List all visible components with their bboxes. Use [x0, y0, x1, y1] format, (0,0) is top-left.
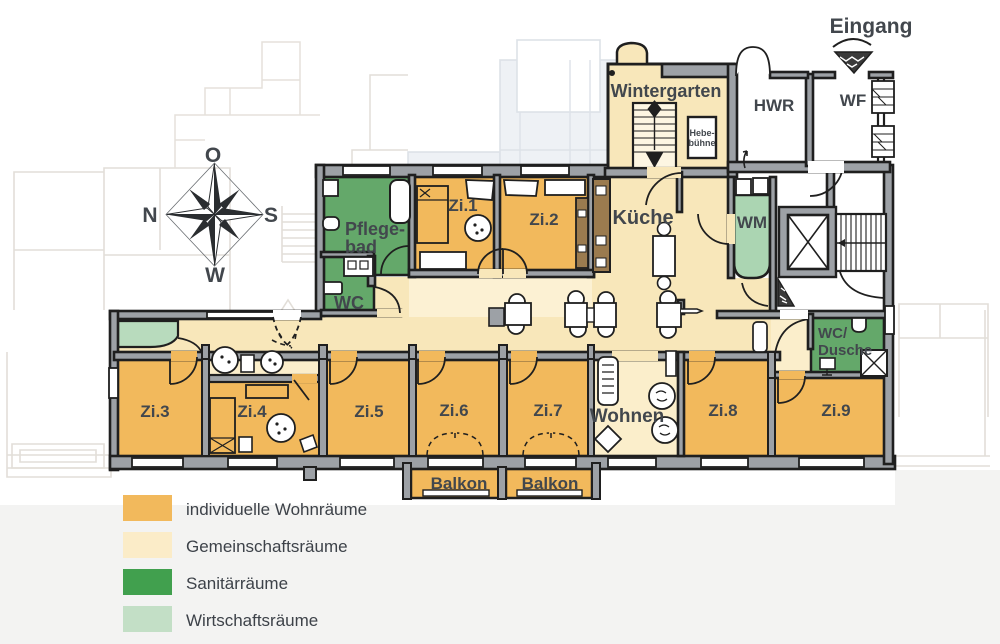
svg-text:Zi.5: Zi.5 — [354, 402, 383, 421]
svg-text:Zi.8: Zi.8 — [708, 401, 737, 420]
svg-text:Zi.7: Zi.7 — [533, 401, 562, 420]
svg-text:Dusche: Dusche — [818, 342, 872, 359]
svg-text:Balkon: Balkon — [522, 474, 579, 493]
svg-text:Zi.9: Zi.9 — [821, 401, 850, 420]
svg-text:Zi.6: Zi.6 — [439, 401, 468, 420]
svg-text:Gemeinschaftsräume: Gemeinschaftsräume — [186, 537, 348, 556]
svg-text:HWR: HWR — [754, 96, 795, 115]
svg-text:O: O — [205, 144, 221, 167]
svg-text:W: W — [205, 264, 225, 287]
svg-text:bühne: bühne — [689, 138, 716, 148]
svg-text:S: S — [264, 204, 278, 227]
svg-text:WC/: WC/ — [818, 325, 848, 342]
svg-text:Pflege-: Pflege- — [345, 219, 405, 239]
svg-text:N: N — [142, 204, 157, 227]
svg-text:Wintergarten: Wintergarten — [611, 81, 722, 101]
svg-text:Wirtschaftsräume: Wirtschaftsräume — [186, 611, 318, 630]
svg-text:Zi.3: Zi.3 — [140, 402, 169, 421]
svg-text:Zi.2: Zi.2 — [529, 210, 558, 229]
svg-text:Sanitärräume: Sanitärräume — [186, 574, 288, 593]
svg-text:Küche: Küche — [612, 207, 673, 229]
svg-text:Eingang: Eingang — [830, 15, 913, 38]
svg-text:Wohnen: Wohnen — [590, 406, 665, 427]
svg-text:Zi.4: Zi.4 — [237, 402, 267, 421]
svg-text:Balkon: Balkon — [431, 474, 488, 493]
svg-text:Hebe-: Hebe- — [689, 128, 714, 138]
svg-text:Zi.1: Zi.1 — [448, 196, 477, 215]
svg-text:bad: bad — [345, 237, 377, 257]
svg-text:WM: WM — [737, 213, 767, 232]
svg-text:individuelle Wohnräume: individuelle Wohnräume — [186, 500, 367, 519]
svg-text:WF: WF — [840, 91, 866, 110]
svg-text:WC: WC — [334, 293, 364, 313]
